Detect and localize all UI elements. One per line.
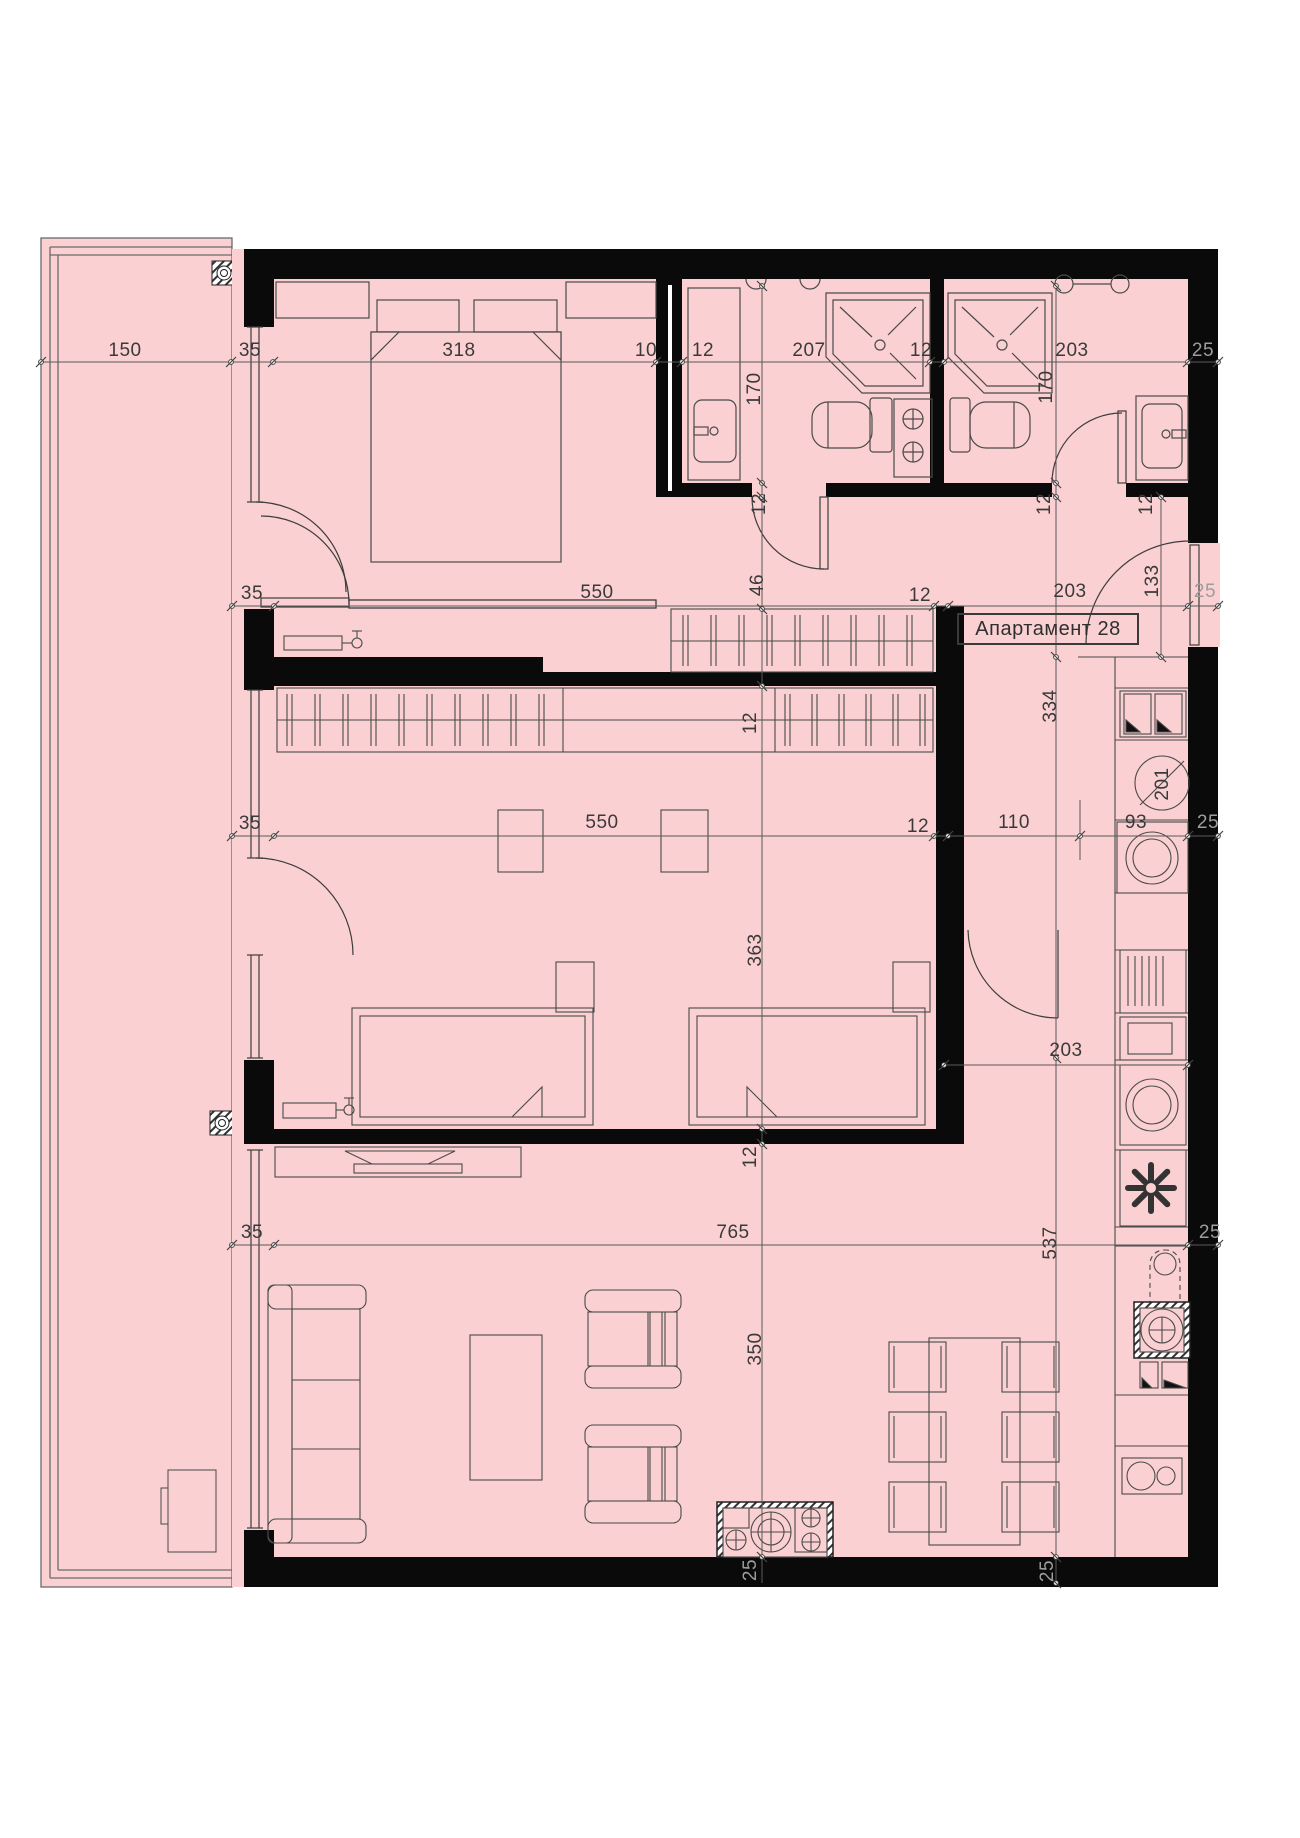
fireplace-stove (717, 1502, 833, 1557)
extractor-hob-icon (1128, 1165, 1174, 1211)
apartment-label: Апартамент 28 (957, 613, 1139, 645)
floor-plan-page: Апартамент 28 15035318101220712203253555… (0, 0, 1300, 1838)
balcony-table (161, 1470, 216, 1552)
balcony (41, 238, 232, 1587)
floor-plan-svg (0, 0, 1300, 1838)
bedroom-partition (349, 600, 656, 608)
kitchen-round-sink (1134, 1302, 1190, 1358)
apartment-floor (232, 249, 1218, 1587)
